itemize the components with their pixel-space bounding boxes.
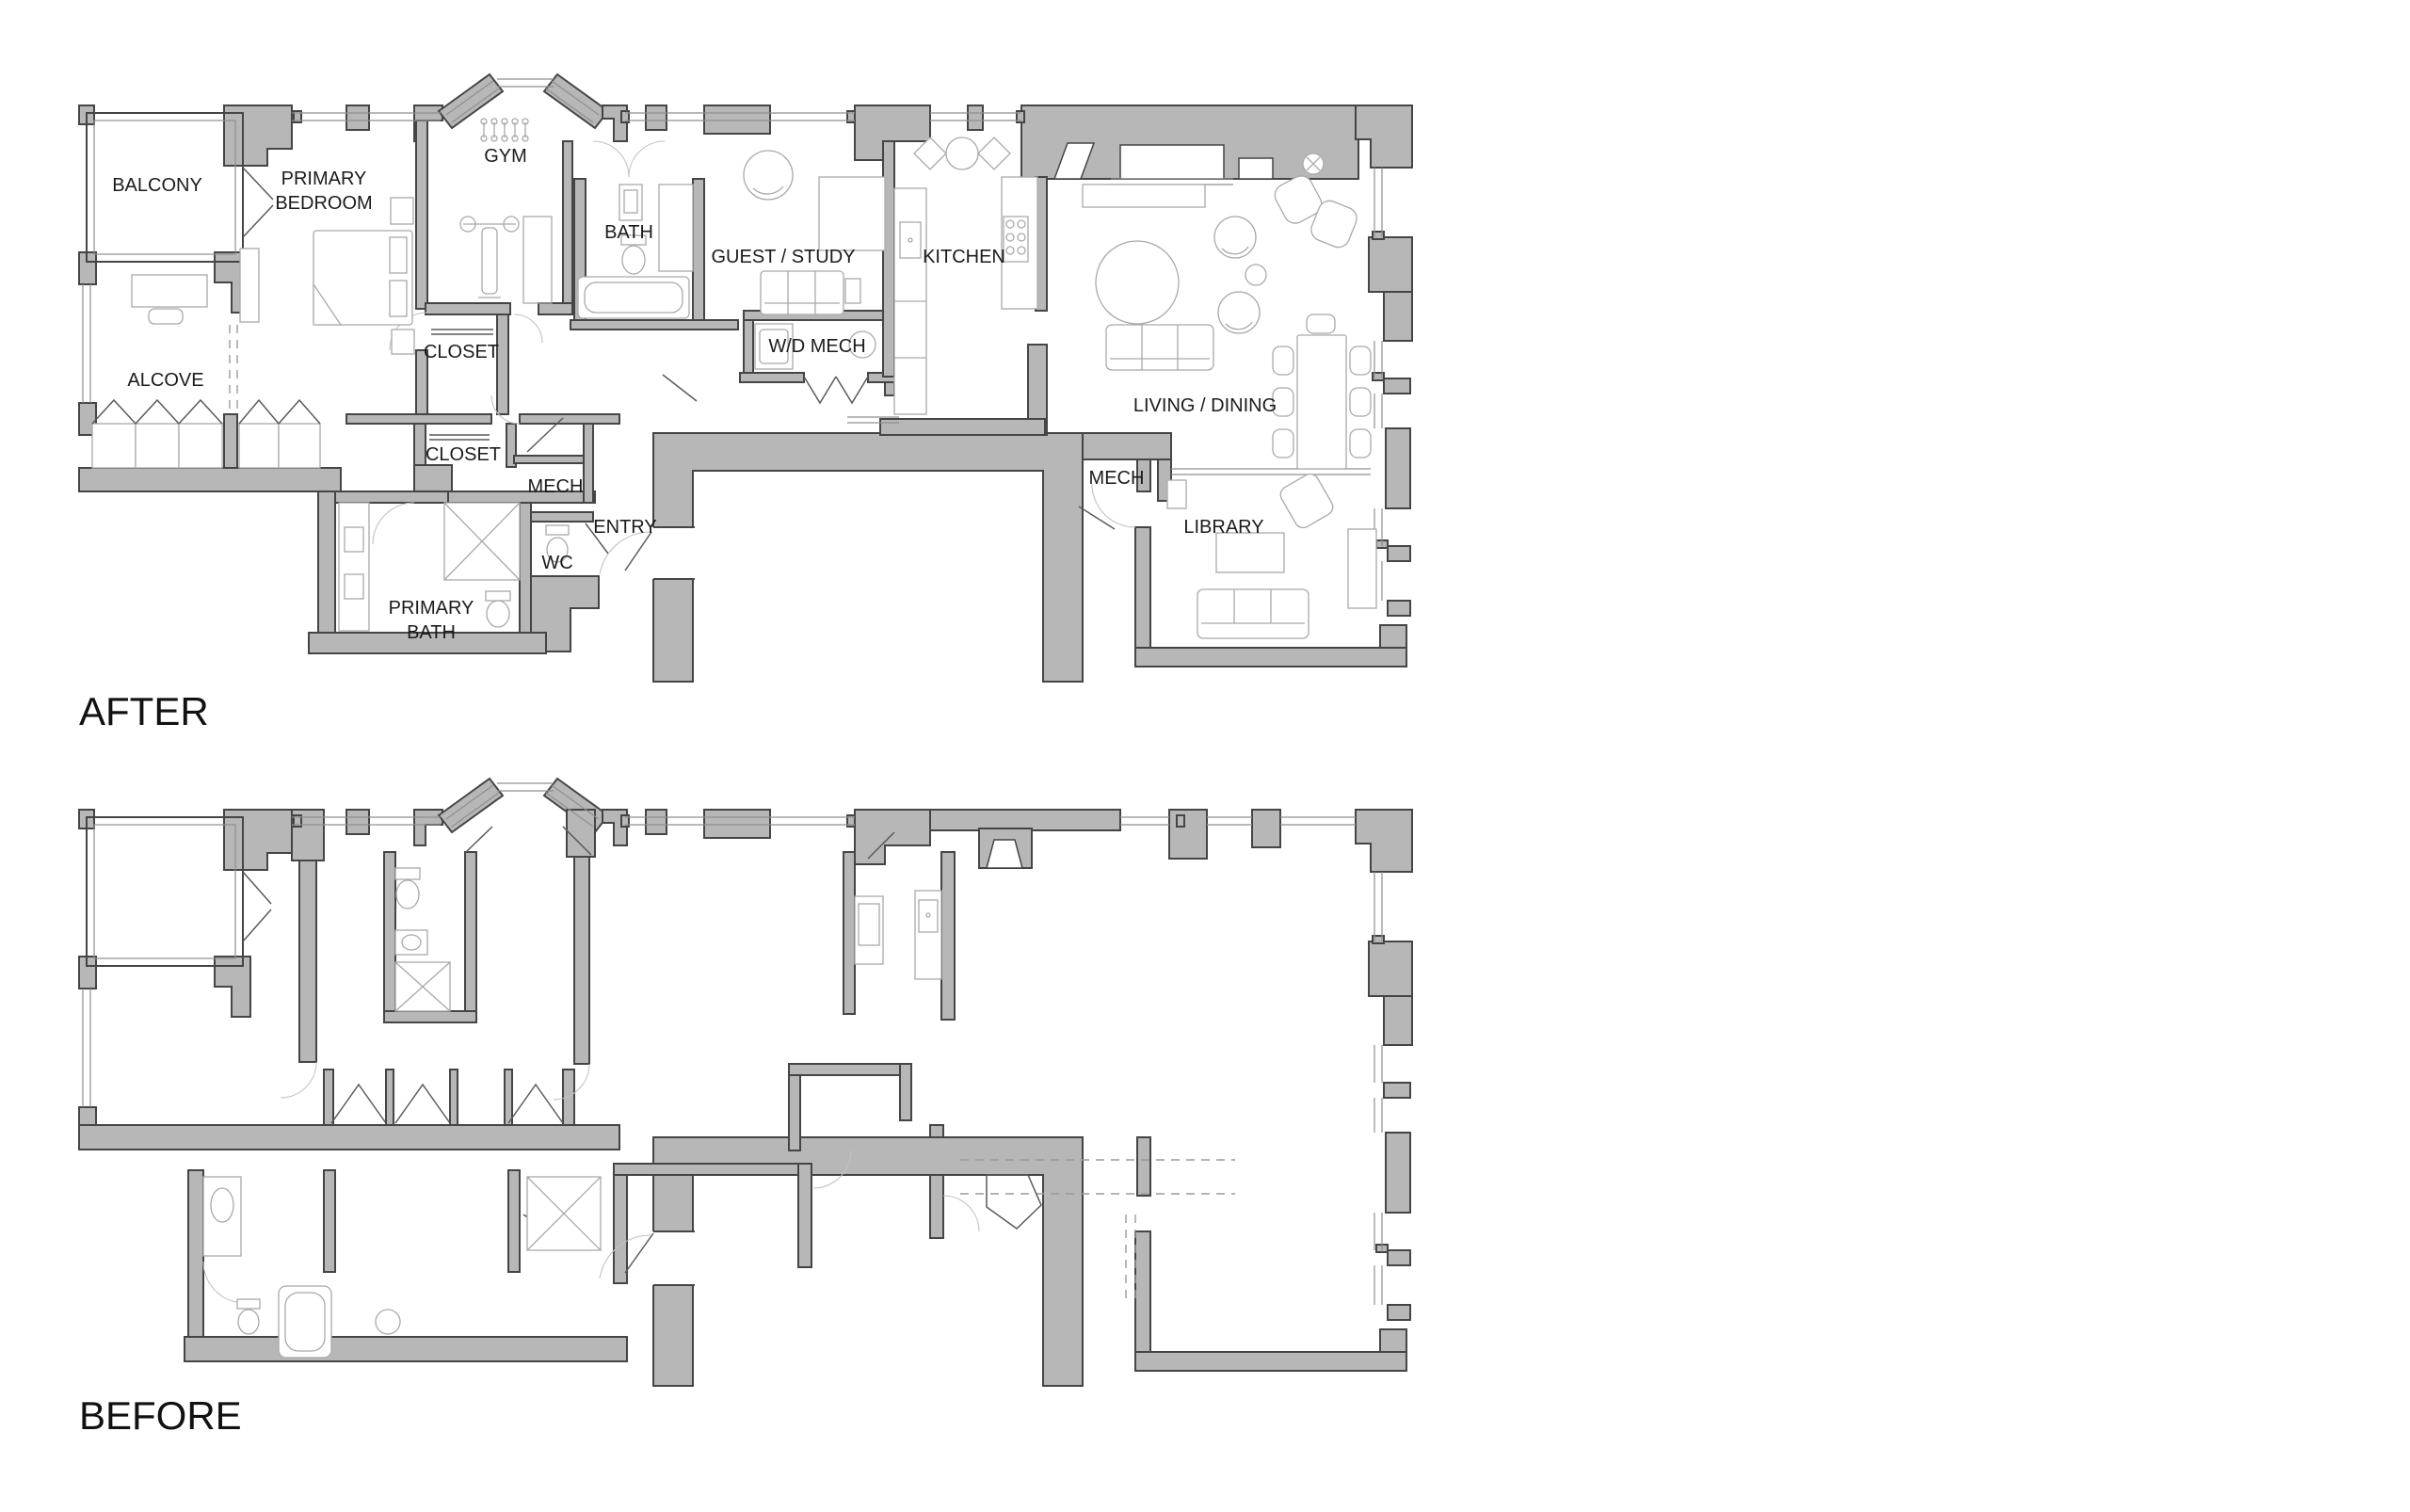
dining-chair	[1273, 346, 1293, 375]
sofa	[761, 271, 843, 314]
bookshelf	[1348, 529, 1376, 608]
after-plan: BALCONY PRIMARY BEDROOM GYM BATH GUEST /…	[79, 74, 1412, 733]
dining-chair	[1307, 314, 1335, 333]
room-label-alcove: ALCOVE	[127, 370, 203, 391]
lounge-chair	[744, 151, 793, 200]
dining-chair	[1350, 388, 1371, 416]
cafe-table	[946, 137, 978, 169]
swivel-chair	[1218, 292, 1260, 333]
room-label-mech-entry: MECH	[528, 476, 584, 497]
room-label-closet-bedroom: CLOSET	[424, 342, 499, 362]
bench	[1083, 185, 1205, 207]
toilet	[238, 1310, 259, 1334]
toilet	[396, 880, 419, 909]
wardrobe	[659, 185, 693, 271]
side-table	[1167, 480, 1186, 508]
room-label-entry: ENTRY	[593, 517, 656, 538]
side-table	[1245, 265, 1266, 285]
kitchen-counter-east	[1002, 177, 1037, 309]
armchair	[1277, 471, 1336, 531]
gym-mat	[523, 217, 552, 303]
room-label-primary-bedroom-1: PRIMARY	[281, 169, 367, 189]
rug	[1096, 241, 1179, 324]
sofa	[1106, 325, 1213, 370]
plan-title-after: AFTER	[79, 689, 209, 733]
room-label-primary-bedroom-2: BEDROOM	[275, 193, 372, 214]
dumbbell-rack-icon	[481, 119, 528, 141]
room-label-balcony: BALCONY	[112, 175, 202, 196]
dining-table	[1297, 335, 1346, 469]
plan-title-before: BEFORE	[79, 1393, 242, 1438]
cafe-chair	[978, 137, 1010, 169]
room-label-closet-entry: CLOSET	[426, 444, 501, 465]
dining-chair	[1273, 429, 1293, 458]
desk	[819, 177, 885, 250]
room-label-guest-study: GUEST / STUDY	[712, 247, 856, 267]
room-label-library: LIBRARY	[1183, 517, 1263, 538]
wardrobe-row	[92, 400, 320, 468]
dining-chair	[1350, 429, 1371, 458]
side-table	[845, 279, 860, 303]
room-label-mech-library: MECH	[1089, 468, 1145, 489]
sink-counter	[395, 930, 427, 955]
sink	[376, 1310, 400, 1334]
weight-bench	[460, 217, 519, 298]
bathtub	[279, 1286, 331, 1358]
sofa	[1197, 589, 1309, 638]
room-label-wc: WC	[541, 553, 572, 573]
toilet	[487, 601, 509, 627]
room-label-primary-bath-2: BATH	[407, 622, 456, 643]
cafe-chair	[914, 137, 946, 169]
room-label-kitchen: KITCHEN	[923, 247, 1005, 267]
dining-chair	[1350, 346, 1371, 375]
room-label-bath: BATH	[604, 222, 653, 243]
toilet	[622, 246, 645, 274]
before-plan: BEFORE	[79, 779, 1412, 1438]
floorplan-page: BALCONY PRIMARY BEDROOM GYM BATH GUEST /…	[0, 0, 2410, 1512]
room-label-living-dining: LIVING / DINING	[1133, 395, 1277, 416]
room-label-wd-mech: W/D MECH	[768, 336, 865, 357]
before-windows	[83, 783, 1382, 1305]
room-label-primary-bath-1: PRIMARY	[389, 598, 474, 619]
coffee-table	[1216, 533, 1284, 572]
room-label-gym: GYM	[484, 146, 527, 167]
double-vanity	[339, 503, 369, 631]
swivel-chair	[1214, 217, 1256, 258]
floorplan-drawing: BALCONY PRIMARY BEDROOM GYM BATH GUEST /…	[0, 0, 2410, 1512]
